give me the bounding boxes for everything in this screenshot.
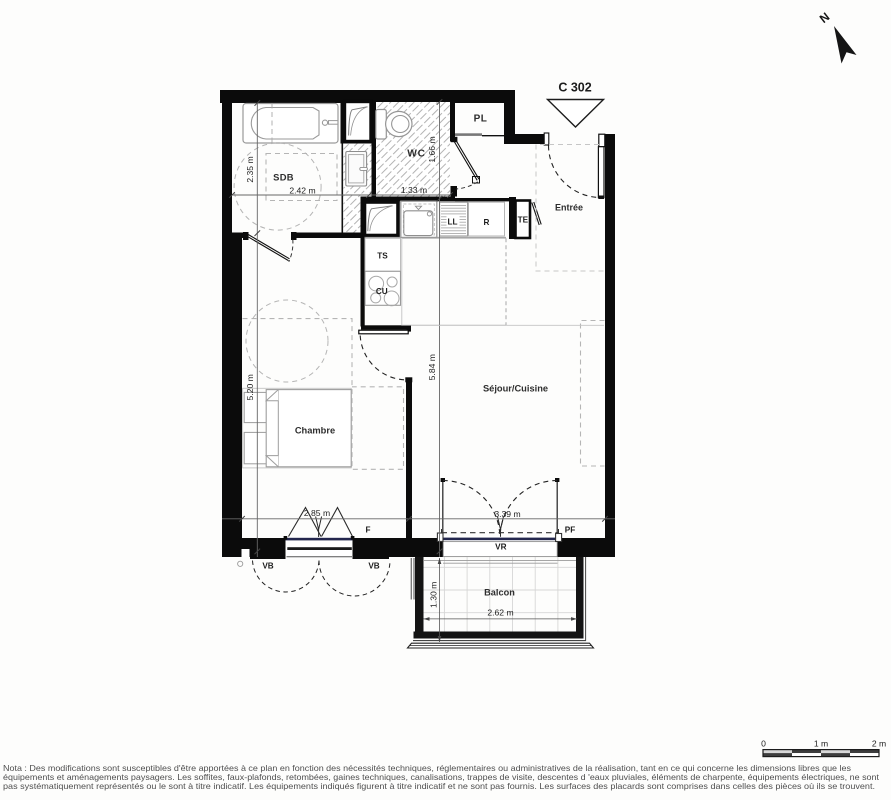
svg-text:SDB: SDB	[273, 172, 294, 183]
svg-text:CU: CU	[376, 287, 388, 296]
svg-text:2.42 m: 2.42 m	[289, 186, 315, 196]
svg-text:F: F	[365, 525, 370, 534]
svg-text:Entrée: Entrée	[555, 203, 583, 213]
svg-text:0: 0	[761, 739, 766, 749]
svg-text:LL: LL	[447, 217, 457, 226]
svg-text:Séjour/Cuisine: Séjour/Cuisine	[483, 384, 548, 394]
svg-text:C 302: C 302	[558, 81, 591, 95]
svg-text:VR: VR	[495, 542, 506, 551]
svg-text:1.33 m: 1.33 m	[401, 185, 427, 195]
svg-text:3.39 m: 3.39 m	[494, 509, 520, 519]
svg-text:pas systématiquement représent: pas systématiquement représentés ou le s…	[3, 782, 875, 791]
svg-text:TE: TE	[518, 216, 529, 225]
svg-text:2.35 m: 2.35 m	[245, 156, 255, 182]
svg-text:5.84 m: 5.84 m	[427, 354, 437, 380]
svg-text:VB: VB	[262, 562, 273, 571]
svg-text:1 m: 1 m	[814, 739, 828, 749]
svg-text:VB: VB	[368, 562, 379, 571]
svg-text:Nota : Des modifications sont: Nota : Des modifications sont susceptibl…	[3, 764, 851, 773]
svg-text:Chambre: Chambre	[295, 426, 335, 436]
svg-text:Balcon: Balcon	[484, 588, 515, 598]
svg-text:1.66 m: 1.66 m	[427, 136, 437, 162]
svg-text:2 m: 2 m	[872, 739, 886, 749]
svg-text:équipements et aménagements pa: équipements et aménagements paysagers. L…	[3, 773, 880, 782]
svg-text:2.85 m: 2.85 m	[304, 508, 330, 518]
svg-text:PF: PF	[565, 525, 575, 534]
svg-text:WC: WC	[407, 149, 426, 160]
svg-text:R: R	[484, 218, 490, 227]
svg-text:2.62 m: 2.62 m	[487, 608, 513, 618]
svg-text:TS: TS	[377, 252, 388, 261]
svg-text:1.30 m: 1.30 m	[429, 582, 439, 608]
svg-text:PL: PL	[474, 114, 488, 125]
svg-text:5.20 m: 5.20 m	[245, 374, 255, 400]
